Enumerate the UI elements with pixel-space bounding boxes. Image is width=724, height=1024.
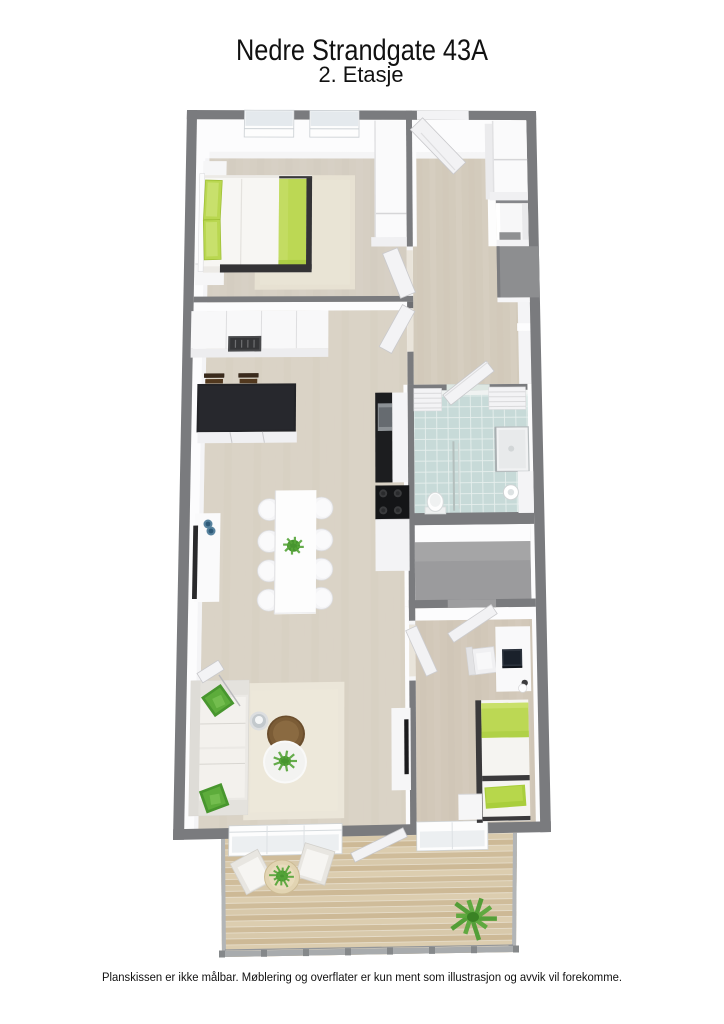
svg-text:2. Etasje: 2. Etasje	[319, 62, 404, 87]
svg-text:Planskissen er ikke målbar. Mø: Planskissen er ikke målbar. Møblering og…	[102, 970, 622, 984]
